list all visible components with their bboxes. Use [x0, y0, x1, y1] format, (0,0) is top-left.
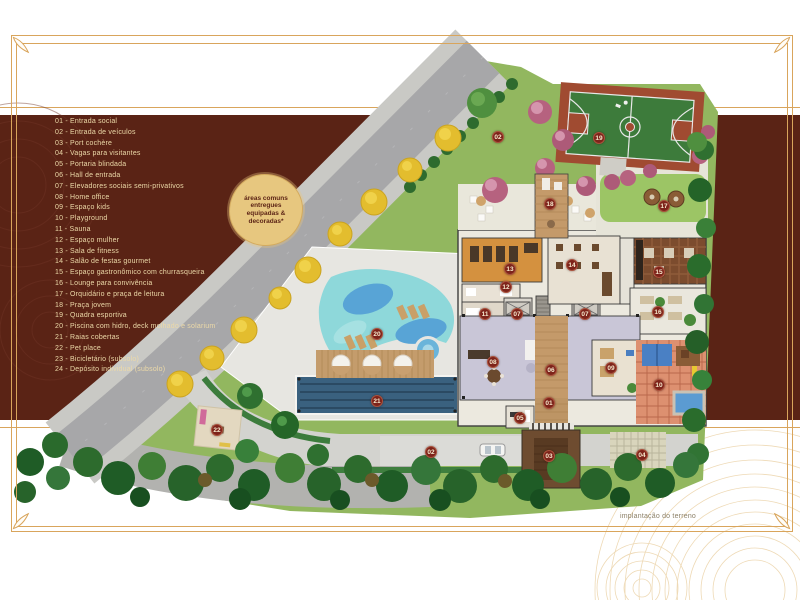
terrace	[458, 184, 598, 230]
pet-place	[194, 406, 242, 450]
wood-deck	[316, 350, 434, 378]
legend-item-12: 12 - Espaço mulher	[55, 236, 255, 247]
legend-item-24: 24 - Depósito individual (subsolo)	[55, 365, 255, 376]
legend-list: 01 - Entrada social02 - Entrada de veícu…	[55, 117, 255, 376]
legend-item-10: 10 - Playground	[55, 214, 255, 225]
lap-pool	[296, 376, 458, 414]
legend-item-02: 02 - Entrada de veículos	[55, 128, 255, 139]
legend-item-07: 07 - Elevadores sociais semi-privativos	[55, 182, 255, 193]
legend-item-09: 09 - Espaço kids	[55, 203, 255, 214]
legend-item-17: 17 - Orquidário e praça de leitura	[55, 290, 255, 301]
legend-item-05: 05 - Portaria blindada	[55, 160, 255, 171]
legend-item-14: 14 - Salão de festas gourmet	[55, 257, 255, 268]
common-areas-badge: áreas comunsentreguesequipadas &decorada…	[229, 174, 303, 246]
brochure-page: 01 - Entrada social02 - Entrada de veícu…	[0, 0, 800, 600]
legend-item-18: 18 - Praça jovem	[55, 301, 255, 312]
legend-item-08: 08 - Home office	[55, 193, 255, 204]
legend-item-13: 13 - Sala de fitness	[55, 247, 255, 258]
car	[480, 444, 505, 456]
badge-line-0: áreas comuns	[244, 195, 288, 203]
legend-item-11: 11 - Sauna	[55, 225, 255, 236]
legend-item-22: 22 - Pet place	[55, 344, 255, 355]
sports-court	[555, 82, 704, 172]
legend-item-03: 03 - Port cochère	[55, 139, 255, 150]
legend-item-06: 06 - Hall de entrada	[55, 171, 255, 182]
legend-item-15: 15 - Espaço gastronômico com churrasquei…	[55, 268, 255, 279]
legend-item-01: 01 - Entrada social	[55, 117, 255, 128]
plan-caption: implantação do terreno	[556, 513, 696, 520]
legend-item-04: 04 - Vagas para visitantes	[55, 149, 255, 160]
legend-item-21: 21 - Raias cobertas	[55, 333, 255, 344]
legend-item-20: 20 - Piscina com hidro, deck molhado e s…	[55, 322, 255, 333]
legend-item-19: 19 - Quadra esportiva	[55, 311, 255, 322]
legend-item-16: 16 - Lounge para convivência	[55, 279, 255, 290]
badge-line-3: decoradas*	[248, 218, 283, 226]
badge-line-1: entregues	[250, 202, 281, 210]
legend-item-23: 23 - Bicicletário (subsolo)	[55, 355, 255, 366]
badge-line-2: equipadas &	[247, 210, 286, 218]
